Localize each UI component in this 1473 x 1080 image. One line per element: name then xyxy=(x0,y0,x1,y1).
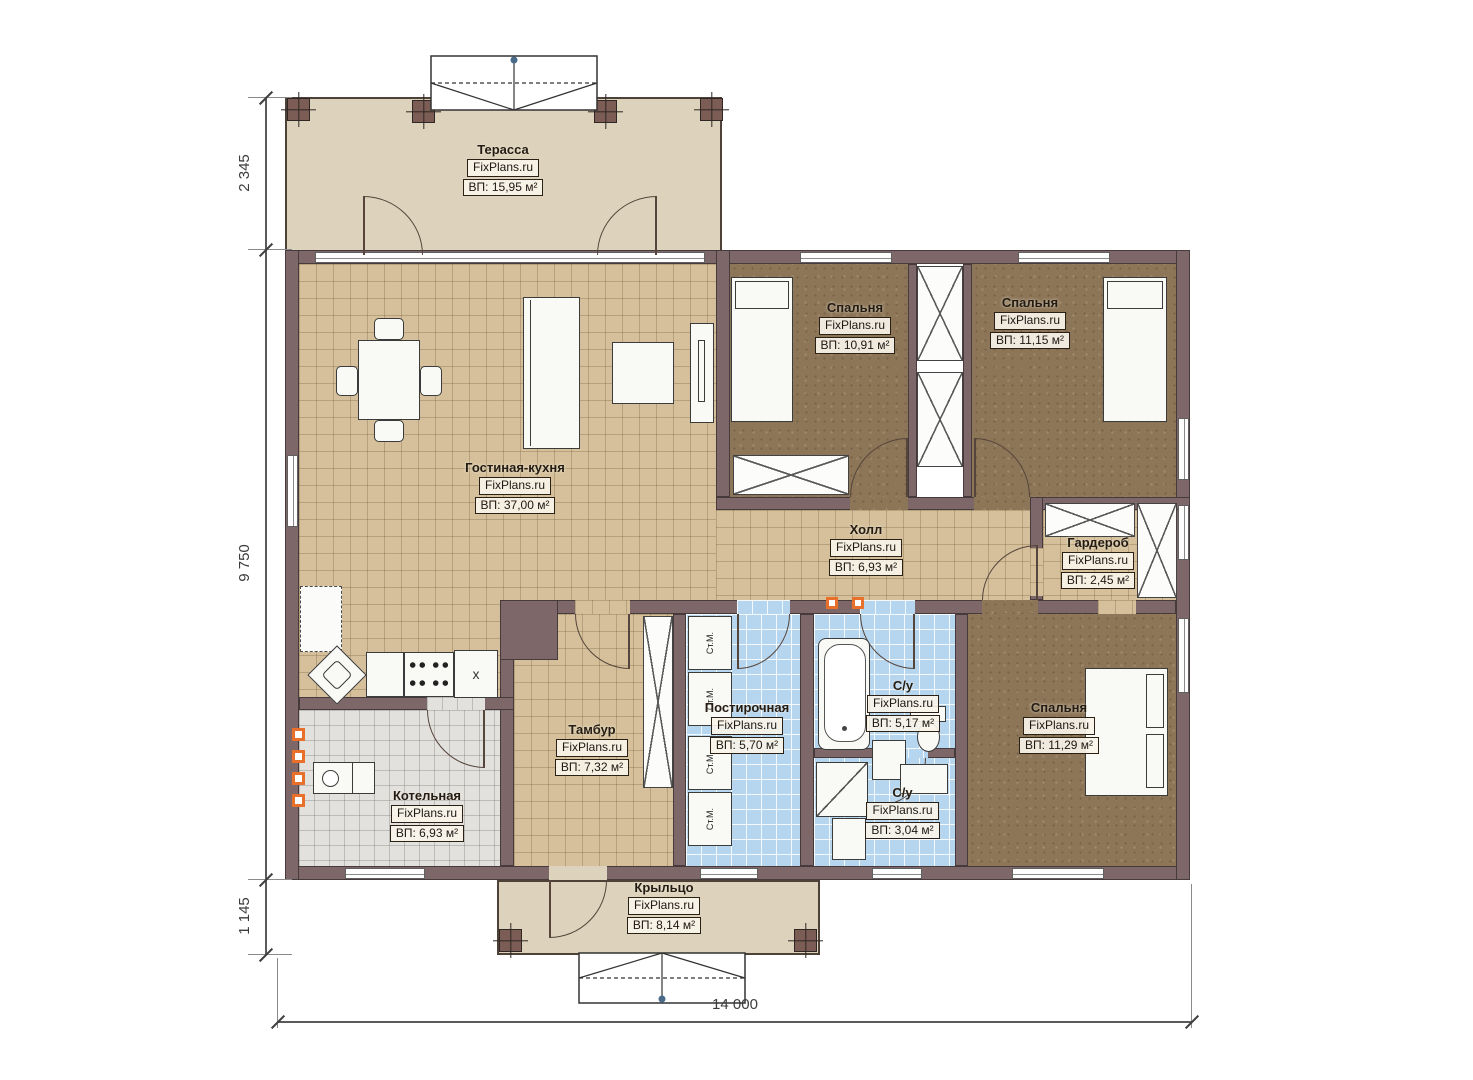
washer-label: Ст.М. xyxy=(705,752,715,774)
dimension-line-bottom xyxy=(278,1021,1192,1023)
room-label-laundry: Постирочная FixPlans.ru ВП: 5,70 м² xyxy=(688,700,806,754)
room-name: Терасса xyxy=(433,142,573,157)
door-leaf xyxy=(655,196,657,255)
room-label-boiler: Котельная FixPlans.ru ВП: 6,93 м² xyxy=(368,788,486,842)
door-gap xyxy=(974,497,1030,510)
brand-box: FixPlans.ru xyxy=(479,477,551,495)
room-name: Спальня xyxy=(970,295,1090,310)
pillow xyxy=(1146,674,1164,728)
door-gap xyxy=(1098,600,1136,614)
room-name: Гардероб xyxy=(1042,535,1154,550)
room-label-bedroom3: Спальня FixPlans.ru ВП: 11,29 м² xyxy=(1000,700,1118,754)
door-gap xyxy=(549,866,607,880)
post xyxy=(794,929,817,952)
room-name: С/у xyxy=(855,785,950,800)
washing-machine: Ст.М. xyxy=(688,792,732,846)
area-box: ВП: 5,17 м² xyxy=(866,715,940,733)
area-box: ВП: 7,32 м² xyxy=(555,759,629,777)
dining-table xyxy=(358,340,420,420)
pillow xyxy=(1146,734,1164,788)
room-name: Спальня xyxy=(1000,700,1118,715)
door-leaf xyxy=(363,196,365,255)
vent-marker xyxy=(292,750,305,763)
closet xyxy=(643,616,673,788)
window xyxy=(1178,618,1189,693)
door-gap xyxy=(575,600,630,614)
brand-box: FixPlans.ru xyxy=(867,695,939,713)
wall xyxy=(716,250,730,497)
chair xyxy=(420,366,442,396)
chair xyxy=(374,318,404,340)
dim-porch-depth: 1 145 xyxy=(236,876,256,956)
wall xyxy=(1176,250,1190,880)
stove xyxy=(404,652,454,697)
boiler-divider xyxy=(352,763,353,793)
window xyxy=(872,868,922,879)
brand-box: FixPlans.ru xyxy=(1023,717,1095,735)
window xyxy=(345,868,425,879)
kitchen-upper-cabinet xyxy=(300,586,342,652)
brand-box: FixPlans.ru xyxy=(819,317,891,335)
room-label-porch: Крыльцо FixPlans.ru ВП: 8,14 м² xyxy=(608,880,720,934)
window xyxy=(1012,868,1104,879)
fridge-slot: x xyxy=(454,650,498,698)
area-box: ВП: 8,14 м² xyxy=(627,917,701,935)
room-name: Крыльцо xyxy=(608,880,720,895)
wardrobe-cabinet xyxy=(917,266,963,361)
brand-box: FixPlans.ru xyxy=(994,312,1066,330)
vent-marker xyxy=(852,597,864,609)
brand-box: FixPlans.ru xyxy=(628,897,700,915)
fridge-mark-label: x xyxy=(473,666,480,682)
area-box: ВП: 15,95 м² xyxy=(463,179,544,197)
kitchen-cabinet xyxy=(366,652,404,697)
room-label-hall: Холл FixPlans.ru ВП: 6,93 м² xyxy=(810,522,922,576)
room-label-wardrobe: Гардероб FixPlans.ru ВП: 2,45 м² xyxy=(1042,535,1154,589)
dim-terrace-depth: 2 345 xyxy=(236,133,256,213)
wall xyxy=(908,264,917,497)
post xyxy=(287,98,310,121)
pillow xyxy=(735,281,789,309)
room-label-living-kitchen: Гостиная-кухня FixPlans.ru ВП: 37,00 м² xyxy=(440,460,590,514)
brand-box: FixPlans.ru xyxy=(866,802,938,820)
pillow xyxy=(1107,281,1163,309)
extension-line xyxy=(248,97,292,98)
door-gap xyxy=(850,497,908,510)
room-label-vestibule: Тамбур FixPlans.ru ВП: 7,32 м² xyxy=(538,722,646,776)
brand-box: FixPlans.ru xyxy=(711,717,783,735)
area-box: ВП: 11,15 м² xyxy=(990,332,1070,350)
door-leaf xyxy=(628,614,630,669)
room-name: Спальня xyxy=(795,300,915,315)
window xyxy=(1178,418,1189,480)
room-label-bathroom2: С/у FixPlans.ru ВП: 3,04 м² xyxy=(855,785,950,839)
chair xyxy=(374,420,404,442)
bathtub-drain xyxy=(842,726,847,731)
vent-marker xyxy=(292,728,305,741)
area-box: ВП: 37,00 м² xyxy=(475,497,556,515)
brand-box: FixPlans.ru xyxy=(556,739,628,757)
wall xyxy=(673,614,686,866)
brand-box: FixPlans.ru xyxy=(467,159,539,177)
brand-box: FixPlans.ru xyxy=(391,805,463,823)
door-gap xyxy=(982,600,1038,614)
window xyxy=(700,868,758,879)
room-name: Холл xyxy=(810,522,922,537)
sofa-back-line xyxy=(530,300,531,446)
terrace-stairs-icon xyxy=(430,55,598,111)
door-gap xyxy=(427,697,485,710)
wall-pier xyxy=(500,600,558,660)
extension-line xyxy=(248,249,292,250)
sofa xyxy=(523,297,580,449)
wall xyxy=(955,614,968,866)
extension-line xyxy=(277,958,278,1028)
area-box: ВП: 2,45 м² xyxy=(1061,572,1135,590)
wall xyxy=(285,250,299,880)
vent-marker xyxy=(292,772,305,785)
washing-machine: Ст.М. xyxy=(688,616,732,670)
area-box: ВП: 6,93 м² xyxy=(390,825,464,843)
window xyxy=(1018,252,1110,263)
vent-marker xyxy=(292,794,305,807)
extension-line xyxy=(1191,884,1192,1028)
window xyxy=(1178,505,1189,560)
room-label-terrace: Терасса FixPlans.ru ВП: 15,95 м² xyxy=(433,142,573,196)
door-leaf xyxy=(1036,545,1038,600)
door-leaf xyxy=(974,438,976,497)
room-label-bedroom2: Спальня FixPlans.ru ВП: 11,15 м² xyxy=(970,295,1090,349)
window xyxy=(800,252,892,263)
room-label-bedroom1: Спальня FixPlans.ru ВП: 10,91 м² xyxy=(795,300,915,354)
door-leaf xyxy=(549,880,551,938)
dim-house-width: 14 000 xyxy=(655,996,815,1018)
dim-house-depth: 9 750 xyxy=(236,523,256,603)
room-name: Гостиная-кухня xyxy=(440,460,590,475)
tv-screen xyxy=(698,340,705,402)
floor-plan: x Ст.М. Ст.М. Ст.М. Ст.М. xyxy=(0,0,1473,1080)
door-leaf xyxy=(913,614,915,669)
room-label-bathroom1: С/у FixPlans.ru ВП: 5,17 м² xyxy=(858,678,948,732)
washer-label: Ст.М. xyxy=(705,632,715,654)
room-name: Постирочная xyxy=(688,700,806,715)
wardrobe-cabinet xyxy=(1045,503,1135,537)
boiler-dial xyxy=(322,770,339,787)
window xyxy=(287,455,298,527)
room-name: Котельная xyxy=(368,788,486,803)
area-box: ВП: 10,91 м² xyxy=(815,337,896,355)
brand-box: FixPlans.ru xyxy=(830,539,902,557)
area-box: ВП: 5,70 м² xyxy=(710,737,784,755)
door-gap xyxy=(860,600,915,614)
area-box: ВП: 3,04 м² xyxy=(865,822,939,840)
door-leaf xyxy=(737,614,739,669)
door-leaf xyxy=(906,438,908,497)
armchair xyxy=(612,342,674,404)
wardrobe-cabinet xyxy=(917,372,963,467)
area-box: ВП: 11,29 м² xyxy=(1019,737,1099,755)
brand-box: FixPlans.ru xyxy=(1062,552,1134,570)
post xyxy=(700,98,723,121)
room-name: С/у xyxy=(858,678,948,693)
door-gap xyxy=(737,600,790,614)
wardrobe-cabinet xyxy=(733,455,849,495)
door-leaf xyxy=(483,710,485,768)
room-name: Тамбур xyxy=(538,722,646,737)
vent-marker xyxy=(826,597,838,609)
washer-label: Ст.М. xyxy=(705,808,715,830)
chair xyxy=(336,366,358,396)
post xyxy=(499,929,522,952)
area-box: ВП: 6,93 м² xyxy=(829,559,903,577)
dimension-line-left xyxy=(265,98,267,955)
